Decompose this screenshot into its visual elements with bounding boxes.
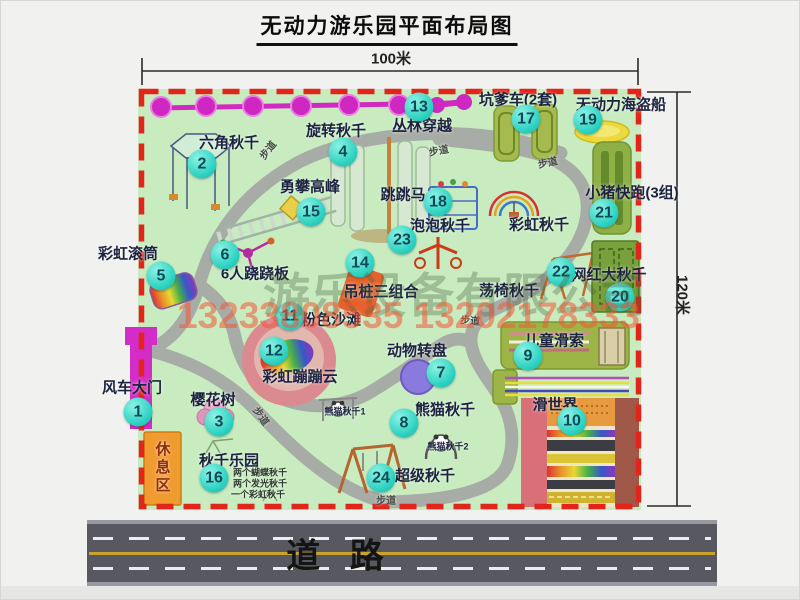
attraction-badge-24[interactable]: 24 <box>367 464 396 493</box>
attraction-label: 樱花树 <box>190 393 235 408</box>
road-center-line <box>89 552 715 555</box>
attraction-badge-9[interactable]: 9 <box>514 342 543 371</box>
attraction-badge-4[interactable]: 4 <box>329 138 358 167</box>
attraction-badge-1[interactable]: 1 <box>124 398 153 427</box>
road-curb-bottom <box>87 582 717 586</box>
swing-park-note-1: 两个蝴蝶秋千 <box>233 469 287 478</box>
attraction-label: 旋转秋千 <box>306 124 366 139</box>
park-layout-plan: 无动力游乐园平面布局图 100米 120米 <box>0 0 800 600</box>
attraction-badge-22[interactable]: 22 <box>547 258 576 287</box>
attraction-label: 超级秋千 <box>395 469 455 484</box>
attraction-badge-16[interactable]: 16 <box>200 464 229 493</box>
attraction-label: 熊猫秋千 <box>415 403 475 418</box>
attraction-label: 吊桩三组合 <box>343 285 418 300</box>
swing-park-note-2: 两个发光秋千 <box>233 480 287 489</box>
attraction-badge-3[interactable]: 3 <box>205 408 234 437</box>
attraction-badge-12[interactable]: 12 <box>260 337 289 366</box>
attraction-badge-20[interactable]: 20 <box>606 283 635 312</box>
swing-park-note-3: 一个彩虹秋千 <box>231 491 285 500</box>
attraction-badge-7[interactable]: 7 <box>427 359 456 388</box>
attraction-badge-13[interactable]: 13 <box>405 93 434 122</box>
attraction-label: 坑爹车(2套) <box>479 93 557 108</box>
attraction-label: 网红大秋千 <box>571 268 646 283</box>
attraction-label: 风车大门 <box>102 381 162 396</box>
attraction-label: 跳跳马 <box>380 188 425 203</box>
panda-swing-1-label: 熊猫秋千1 <box>324 408 365 417</box>
attraction-badge-6[interactable]: 6 <box>211 241 240 270</box>
attraction-badge-19[interactable]: 19 <box>574 106 603 135</box>
attraction-badge-21[interactable]: 21 <box>590 199 619 228</box>
footpath-label: 步道 <box>428 145 449 158</box>
attraction-label: 六角秋千 <box>199 136 259 151</box>
attraction-label: 勇攀高峰 <box>280 180 340 195</box>
attraction-badge-14[interactable]: 14 <box>346 249 375 278</box>
attraction-badge-5[interactable]: 5 <box>147 262 176 291</box>
attraction-label: 泡泡秋千 <box>410 219 470 234</box>
attraction-label: 彩虹蹦蹦云 <box>262 370 337 385</box>
attraction-label: 6人跷跷板 <box>221 267 289 282</box>
attraction-badge-8[interactable]: 8 <box>390 409 419 438</box>
attraction-label: 彩虹滚筒 <box>98 247 158 262</box>
footpath-label: 步道 <box>259 140 279 162</box>
attraction-badge-2[interactable]: 2 <box>188 150 217 179</box>
road-lane-marking-1 <box>93 537 711 540</box>
road <box>87 520 717 586</box>
footpath-label: 步道 <box>460 316 481 328</box>
footpath-label: 步道 <box>376 497 396 507</box>
road-label: 道 路 <box>286 529 393 578</box>
attraction-badge-15[interactable]: 15 <box>297 198 326 227</box>
attraction-label: 荡椅秋千 <box>479 284 539 299</box>
attractions-layer: 风车大门1六角秋千2樱花树3旋转秋千4彩虹滚筒56人跷跷板6动物转盘7熊猫秋千8… <box>1 1 800 600</box>
road-curb-top <box>87 520 717 524</box>
rainbow-swing-label: 彩虹秋千 <box>509 218 569 233</box>
footpath-label: 步道 <box>537 157 559 171</box>
rest-area-label: 休息区 <box>155 441 170 495</box>
attraction-label: 动物转盘 <box>387 344 447 359</box>
attraction-badge-17[interactable]: 17 <box>512 105 541 134</box>
footpath-label: 步道 <box>250 406 270 428</box>
attraction-label: 粉色沙滩 <box>301 313 361 328</box>
attraction-badge-10[interactable]: 10 <box>558 407 587 436</box>
attraction-badge-23[interactable]: 23 <box>388 226 417 255</box>
attraction-badge-18[interactable]: 18 <box>424 188 453 217</box>
road-lane-marking-2 <box>93 567 711 570</box>
attraction-badge-11[interactable]: 11 <box>276 302 305 331</box>
panda-swing-2-label: 熊猫秋千2 <box>427 443 468 452</box>
